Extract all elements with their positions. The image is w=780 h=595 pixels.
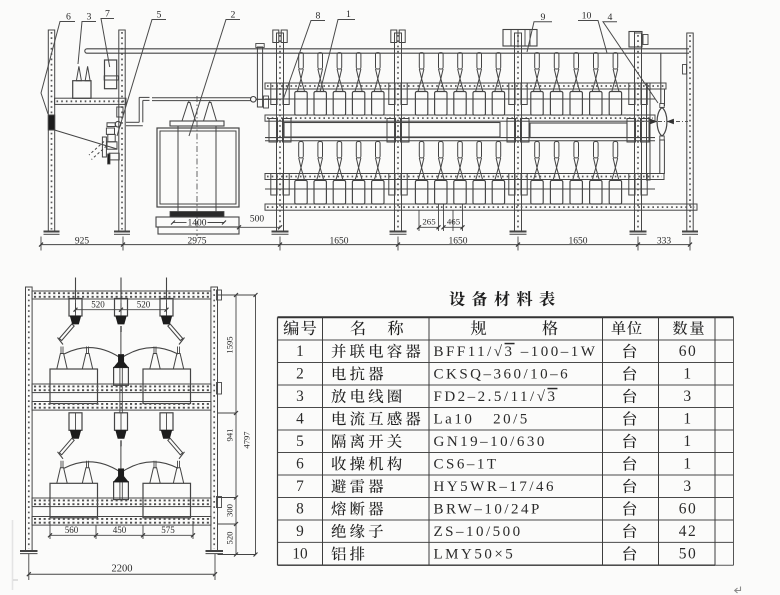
svg-text:520: 520 xyxy=(137,299,151,309)
svg-text:7: 7 xyxy=(296,478,304,495)
svg-text:450: 450 xyxy=(113,525,127,535)
svg-text:560: 560 xyxy=(65,525,79,535)
svg-text:LMY50×5: LMY50×5 xyxy=(434,546,516,562)
svg-text:6: 6 xyxy=(66,12,71,23)
svg-text:CS6–1T: CS6–1T xyxy=(434,456,499,472)
svg-text:3: 3 xyxy=(296,388,304,405)
svg-text:10: 10 xyxy=(292,545,308,562)
svg-text:300: 300 xyxy=(225,504,235,517)
svg-text:60: 60 xyxy=(679,343,698,360)
svg-text:1650: 1650 xyxy=(569,236,588,246)
svg-text:8: 8 xyxy=(316,11,321,22)
svg-text:4: 4 xyxy=(296,410,304,427)
svg-text:CKSQ–360/10–6: CKSQ–360/10–6 xyxy=(434,366,571,382)
svg-text:5: 5 xyxy=(157,10,162,21)
svg-text:1400: 1400 xyxy=(188,218,207,228)
svg-text:10: 10 xyxy=(582,11,592,22)
svg-text:520: 520 xyxy=(91,299,105,309)
svg-text:465: 465 xyxy=(447,217,461,227)
svg-text:3: 3 xyxy=(683,388,692,405)
svg-text:5: 5 xyxy=(296,433,304,450)
svg-text:BRW–10/24P: BRW–10/24P xyxy=(434,501,542,517)
svg-text:1: 1 xyxy=(296,343,304,360)
svg-text:1: 1 xyxy=(683,433,692,450)
svg-text:42: 42 xyxy=(679,523,698,540)
svg-text:1650: 1650 xyxy=(449,236,468,246)
svg-text:1: 1 xyxy=(683,455,692,472)
svg-text:9: 9 xyxy=(296,523,304,540)
svg-text:333: 333 xyxy=(657,236,672,246)
svg-text:1: 1 xyxy=(346,9,351,20)
svg-text:3: 3 xyxy=(87,12,92,23)
svg-text:575: 575 xyxy=(161,525,175,535)
svg-text:520: 520 xyxy=(225,532,235,545)
svg-text:941: 941 xyxy=(225,429,235,442)
svg-text:2: 2 xyxy=(296,365,304,382)
svg-text:265: 265 xyxy=(422,217,436,227)
svg-text:2975: 2975 xyxy=(188,236,207,246)
svg-text:1: 1 xyxy=(683,365,692,382)
svg-text:6: 6 xyxy=(296,455,304,472)
svg-text:1650: 1650 xyxy=(330,236,349,246)
svg-text:925: 925 xyxy=(75,236,90,246)
svg-text:60: 60 xyxy=(679,500,698,517)
svg-text:8: 8 xyxy=(296,500,304,517)
svg-text:4797: 4797 xyxy=(242,431,252,449)
svg-text:La10 20/5: La10 20/5 xyxy=(434,411,530,427)
svg-text:1: 1 xyxy=(683,410,692,427)
svg-text:ZS–10/500: ZS–10/500 xyxy=(434,524,523,540)
svg-text:HY5WR–17/46: HY5WR–17/46 xyxy=(434,479,557,495)
svg-text:2200: 2200 xyxy=(112,563,133,574)
svg-text:FD2–2.5/11/√3: FD2–2.5/11/√3 xyxy=(434,389,558,405)
svg-text:50: 50 xyxy=(679,545,698,562)
svg-text:GN19–10/630: GN19–10/630 xyxy=(434,434,547,450)
svg-text:1595: 1595 xyxy=(225,336,235,353)
svg-text:2: 2 xyxy=(231,10,236,21)
svg-text:3: 3 xyxy=(683,478,692,495)
svg-text:500: 500 xyxy=(250,215,265,225)
svg-text:7: 7 xyxy=(105,9,110,20)
svg-text:BFF11/√3 –100–1W: BFF11/√3 –100–1W xyxy=(434,344,598,360)
